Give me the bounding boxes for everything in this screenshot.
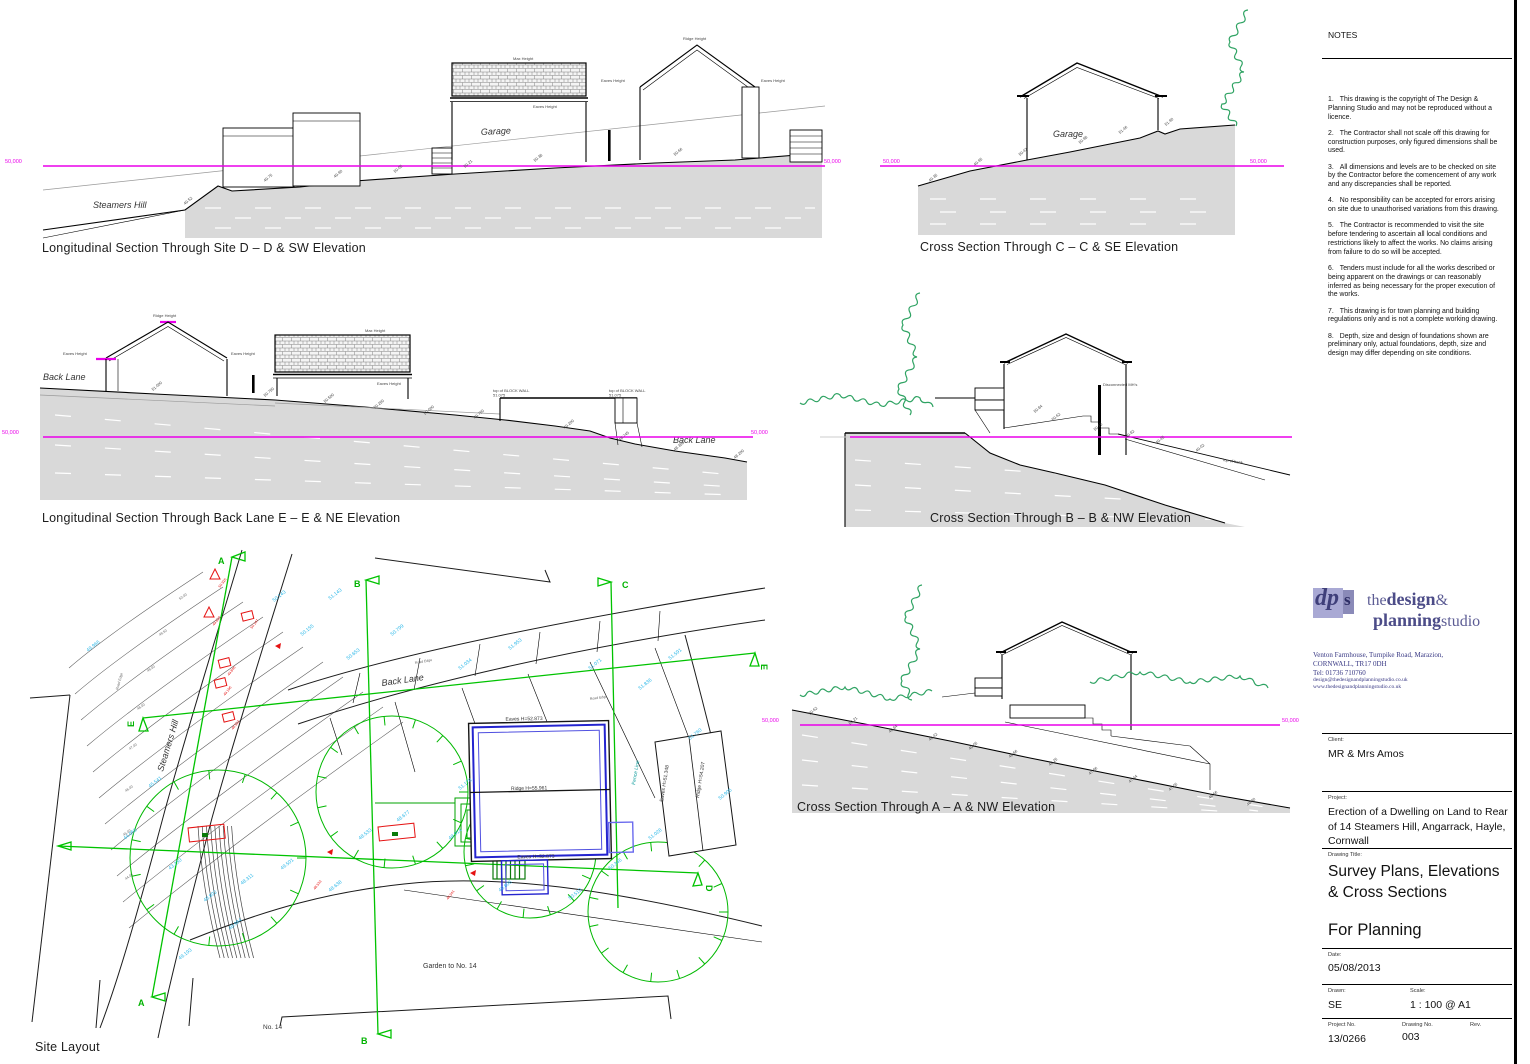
- date-value: 05/08/2013: [1328, 962, 1381, 974]
- house-wing: [742, 87, 759, 158]
- section-dd-caption: Longitudinal Section Through Site D – D …: [42, 241, 366, 255]
- max-height-label: Max Height: [513, 56, 534, 61]
- tree-outline: [1090, 672, 1268, 688]
- spot-level: 45.541: [148, 775, 164, 789]
- drawing-title-label: Drawing Title:: [1328, 852, 1362, 858]
- title-block: NOTES 1.This drawing is the copyright of…: [1322, 0, 1514, 1064]
- flag-e-left: [139, 718, 148, 731]
- contour-label: 49.00: [146, 664, 156, 672]
- survey-marker: 48.533: [313, 879, 323, 890]
- spot-level: 50.799: [390, 623, 406, 637]
- survey-marker: [327, 849, 333, 855]
- tree-outline: [800, 687, 932, 701]
- datum-label-left: 50,000: [2, 430, 19, 436]
- porch: [975, 678, 1002, 688]
- spot-level: 49.193: [178, 947, 194, 961]
- road-label: Steamers Hill: [93, 200, 148, 210]
- garage-label: Garage: [481, 125, 512, 137]
- project-no-value: 13/0266: [1328, 1033, 1366, 1045]
- flag-c-top: [598, 578, 611, 586]
- level-annotation: 48.745: [617, 430, 630, 442]
- ground-mass: [918, 125, 1235, 235]
- survey-markers: 50.92549.62050.14749.84649.19648.92248.5…: [188, 569, 476, 901]
- survey-marker: 49.196: [214, 678, 232, 697]
- drawing-no-label: Drawing No.: [1402, 1022, 1433, 1028]
- site-layout-drawing: A A B B C D E E Eaves H=52.873 Ridge H=5…: [30, 540, 775, 1056]
- section-dd-drawing: Max Height Eaves Height Garage Ridge Hei…: [35, 12, 847, 252]
- survey-marker: 50.925: [210, 569, 228, 589]
- tree-canopy: [316, 716, 468, 868]
- svg-text:48.341: 48.341: [446, 889, 456, 900]
- garage-flat-roof: [275, 335, 410, 372]
- steamers-hill-label: Steamers Hill: [155, 718, 181, 773]
- survey-marker: 50.147: [241, 611, 259, 630]
- survey-marker: [470, 870, 476, 876]
- tree-outline: [901, 585, 922, 700]
- eaves-height-label: Eaves Height: [231, 351, 256, 356]
- survey-marker: 49.846: [218, 658, 236, 677]
- road-edge-label: Road Edge: [414, 658, 432, 665]
- level-annotation: 50.84: [1032, 403, 1043, 414]
- spot-level: 51.143: [328, 587, 344, 601]
- spot-level: 51.034: [458, 657, 474, 671]
- survey-marker: 49.620: [204, 607, 222, 627]
- eaves-height-label: Eaves Height: [761, 78, 786, 83]
- project-value: Erection of a Dwelling on Land to Rear o…: [1328, 805, 1510, 849]
- flag-e-right: [750, 653, 759, 666]
- svg-text:49.196: 49.196: [223, 685, 233, 696]
- road-edge-label: Road Edge: [590, 695, 608, 701]
- section-ee-caption: Longitudinal Section Through Back Lane E…: [42, 511, 400, 525]
- section-bb-drawing: Disconnected MH's top of bank 50.8450.62…: [795, 285, 1295, 527]
- section-marker-e: E: [759, 664, 769, 670]
- drawn-value: SE: [1328, 999, 1342, 1011]
- block-wall-pier: [615, 398, 637, 423]
- section-cc-caption: Cross Section Through C – C & SE Elevati…: [920, 240, 1178, 254]
- steps: [1085, 718, 1111, 736]
- road-edge-label: Road Edge: [115, 672, 124, 690]
- porch: [975, 400, 1004, 410]
- level-annotation: 49.02: [1194, 442, 1205, 453]
- spot-level: 48.677: [396, 809, 412, 823]
- sheet-border: [1514, 0, 1517, 1064]
- flag-b-top: [366, 576, 379, 584]
- mh-label: Disconnected MH's: [1103, 382, 1137, 387]
- datum-label-right: 50,000: [751, 430, 768, 436]
- level-annotation: 50.38: [532, 152, 543, 163]
- section-cc-drawing: Garage 50,000 50,000 49.3549.9550.4250.9…: [870, 14, 1290, 252]
- company-address: Venton Farmhouse, Turnpike Road, Marazio…: [1313, 651, 1513, 691]
- contour-label: 47.00: [128, 742, 138, 750]
- level-annotation: 49.45: [1154, 434, 1165, 445]
- tree-canopies: [130, 716, 728, 982]
- mh-post: [1098, 385, 1101, 455]
- spot-level: 48.311: [240, 873, 256, 887]
- spot-level: 48.638: [328, 879, 344, 893]
- no14-label: No. 14: [263, 1024, 283, 1031]
- status-value: For Planning: [1328, 921, 1422, 940]
- spot-level: 50.155: [300, 623, 316, 637]
- level-annotation: 50.05: [392, 163, 403, 174]
- level-annotation: 50.21: [462, 158, 473, 169]
- building-roof: [1000, 622, 1133, 653]
- svg-text:49.846: 49.846: [227, 665, 237, 676]
- ridge-height-label: Ridge Height: [153, 313, 177, 318]
- road-label-left: Back Lane: [43, 372, 86, 382]
- spot-level: 51.591: [668, 647, 684, 661]
- contour-label: 48.00: [136, 702, 146, 710]
- terrace: [1010, 705, 1085, 718]
- steps: [432, 148, 452, 174]
- flag-a-top: [232, 552, 245, 561]
- spot-level: 51.953: [508, 637, 524, 651]
- spot-level: 51.028: [648, 827, 664, 841]
- rev-label: Rev.: [1470, 1022, 1481, 1028]
- ground-mass: [40, 388, 747, 500]
- drawing-title-value: Survey Plans, Elevations & Cross Section…: [1328, 861, 1513, 904]
- spot-level: 51.836: [638, 677, 654, 691]
- section-marker-b: B: [361, 1036, 368, 1046]
- flag-b-bottom: [378, 1030, 391, 1038]
- level-annotation: 51.90: [1163, 116, 1174, 127]
- datum-label-right: 50,000: [1250, 159, 1267, 165]
- client-value: MR & Mrs Amos: [1328, 748, 1404, 760]
- level-annotation: 50.500: [322, 392, 335, 404]
- drawing-sheet: Max Height Eaves Height Garage Ridge Hei…: [0, 0, 1530, 1064]
- eaves-height-label: Eaves Height: [601, 78, 626, 83]
- eaves-height-label: Eaves Height: [63, 351, 88, 356]
- porch: [975, 388, 1004, 400]
- boundary-lines: [30, 550, 765, 1038]
- site-layout-caption: Site Layout: [35, 1040, 100, 1054]
- fence-line-label: Fence Line: [631, 760, 641, 786]
- blockwall-level: 51.075: [493, 393, 506, 398]
- level-annotation: 49.95: [972, 156, 983, 167]
- logo-s: s: [1344, 590, 1351, 610]
- tree-outline: [1221, 10, 1248, 126]
- porch: [975, 688, 1002, 696]
- spot-level: 50.653: [346, 647, 362, 661]
- survey-marker: 48.341: [446, 889, 456, 900]
- garage-label: Garage: [1053, 129, 1083, 139]
- post: [252, 375, 255, 393]
- flag-d-right: [693, 873, 702, 886]
- level-annotation: 50.66: [672, 146, 683, 157]
- notes-title: NOTES: [1328, 30, 1357, 40]
- contour-label: 46.00: [124, 784, 134, 792]
- level-annotation: 50.750: [262, 386, 275, 398]
- section-marker-b: B: [354, 579, 361, 589]
- ridge-height-label: Ridge Height: [683, 36, 707, 41]
- retaining-steps: [790, 130, 822, 162]
- scale-value: 1 : 100 @ A1: [1410, 999, 1471, 1011]
- svg-text:48.533: 48.533: [313, 879, 323, 890]
- tree-outline: [800, 394, 933, 407]
- bank-hatch: [198, 826, 254, 958]
- blockwall-level: 51.075: [609, 393, 622, 398]
- svg-text:50.147: 50.147: [250, 618, 260, 629]
- section-marker-e: E: [126, 721, 136, 727]
- contour-label: 50.00: [178, 592, 188, 600]
- spot-level: 49.501: [280, 857, 296, 871]
- datum-label-right: 50,000: [1282, 718, 1299, 724]
- outbuilding-2: [293, 113, 360, 186]
- section-marker-c: C: [622, 580, 629, 590]
- spot-level: 48.533: [358, 827, 374, 841]
- level-annotation: 51.46: [1117, 124, 1128, 135]
- datum-label-left: 50,000: [5, 159, 22, 165]
- section-aa-caption: Cross Section Through A – A & NW Elevati…: [797, 800, 1055, 814]
- garage-flat-roof: [452, 63, 586, 96]
- bank-label: top of bank: [1223, 457, 1243, 465]
- survey-marker: [378, 823, 415, 841]
- garden-label: Garden to No. 14: [423, 963, 477, 970]
- back-lane-label: Back Lane: [381, 672, 425, 688]
- section-ee-drawing: Ridge Height Eaves Height Eaves Height M…: [35, 295, 770, 523]
- project-label: Project:: [1328, 795, 1347, 801]
- post: [608, 130, 611, 161]
- section-marker-a: A: [138, 998, 145, 1008]
- section-marker-a: A: [218, 556, 225, 566]
- level-annotation: 51.000: [150, 380, 163, 392]
- section-aa-drawing: 50,000 50,000 50.6250.2149.8449.4249.054…: [758, 575, 1303, 815]
- contour-lines: [69, 572, 403, 928]
- date-label: Date:: [1328, 952, 1341, 958]
- datum-label-left: 50,000: [883, 159, 900, 165]
- building-roof: [1004, 334, 1128, 363]
- eaves-height-label: Eaves Height: [533, 104, 558, 109]
- survey-marker: [275, 643, 281, 649]
- project-no-label: Project No.: [1328, 1022, 1356, 1028]
- section-bb-caption: Cross Section Through B – B & NW Elevati…: [930, 511, 1191, 525]
- logo-dp: dp: [1315, 585, 1339, 612]
- client-label: Client:: [1328, 737, 1344, 743]
- spot-level: 49.966: [86, 639, 102, 653]
- drawing-no-value: 003: [1402, 1031, 1420, 1043]
- tree-canopy: [588, 842, 728, 982]
- notes-list: 1.This drawing is the copyright of The D…: [1328, 96, 1500, 366]
- scale-label: Scale:: [1410, 988, 1426, 994]
- eaves-label: Eaves H=52.873: [505, 716, 542, 723]
- spot-level: 50.143: [272, 589, 288, 603]
- drawn-label: Drawn:: [1328, 988, 1346, 994]
- logo-text: thedesign& planningstudio: [1367, 589, 1480, 632]
- max-height-label: Max Height: [365, 328, 386, 333]
- datum-label-right: 50,000: [824, 159, 841, 165]
- house-roof: [640, 45, 755, 87]
- eaves-height-label: Eaves Height: [377, 381, 402, 386]
- flag-a-bottom: [152, 993, 165, 1001]
- outbuilding-1: [223, 128, 294, 187]
- ridge-label: Ridge H=55.961: [511, 785, 548, 792]
- level-annotation: 48.200: [732, 448, 745, 460]
- survey-marker: 48.922: [222, 712, 240, 731]
- section-marker-d: D: [704, 885, 714, 892]
